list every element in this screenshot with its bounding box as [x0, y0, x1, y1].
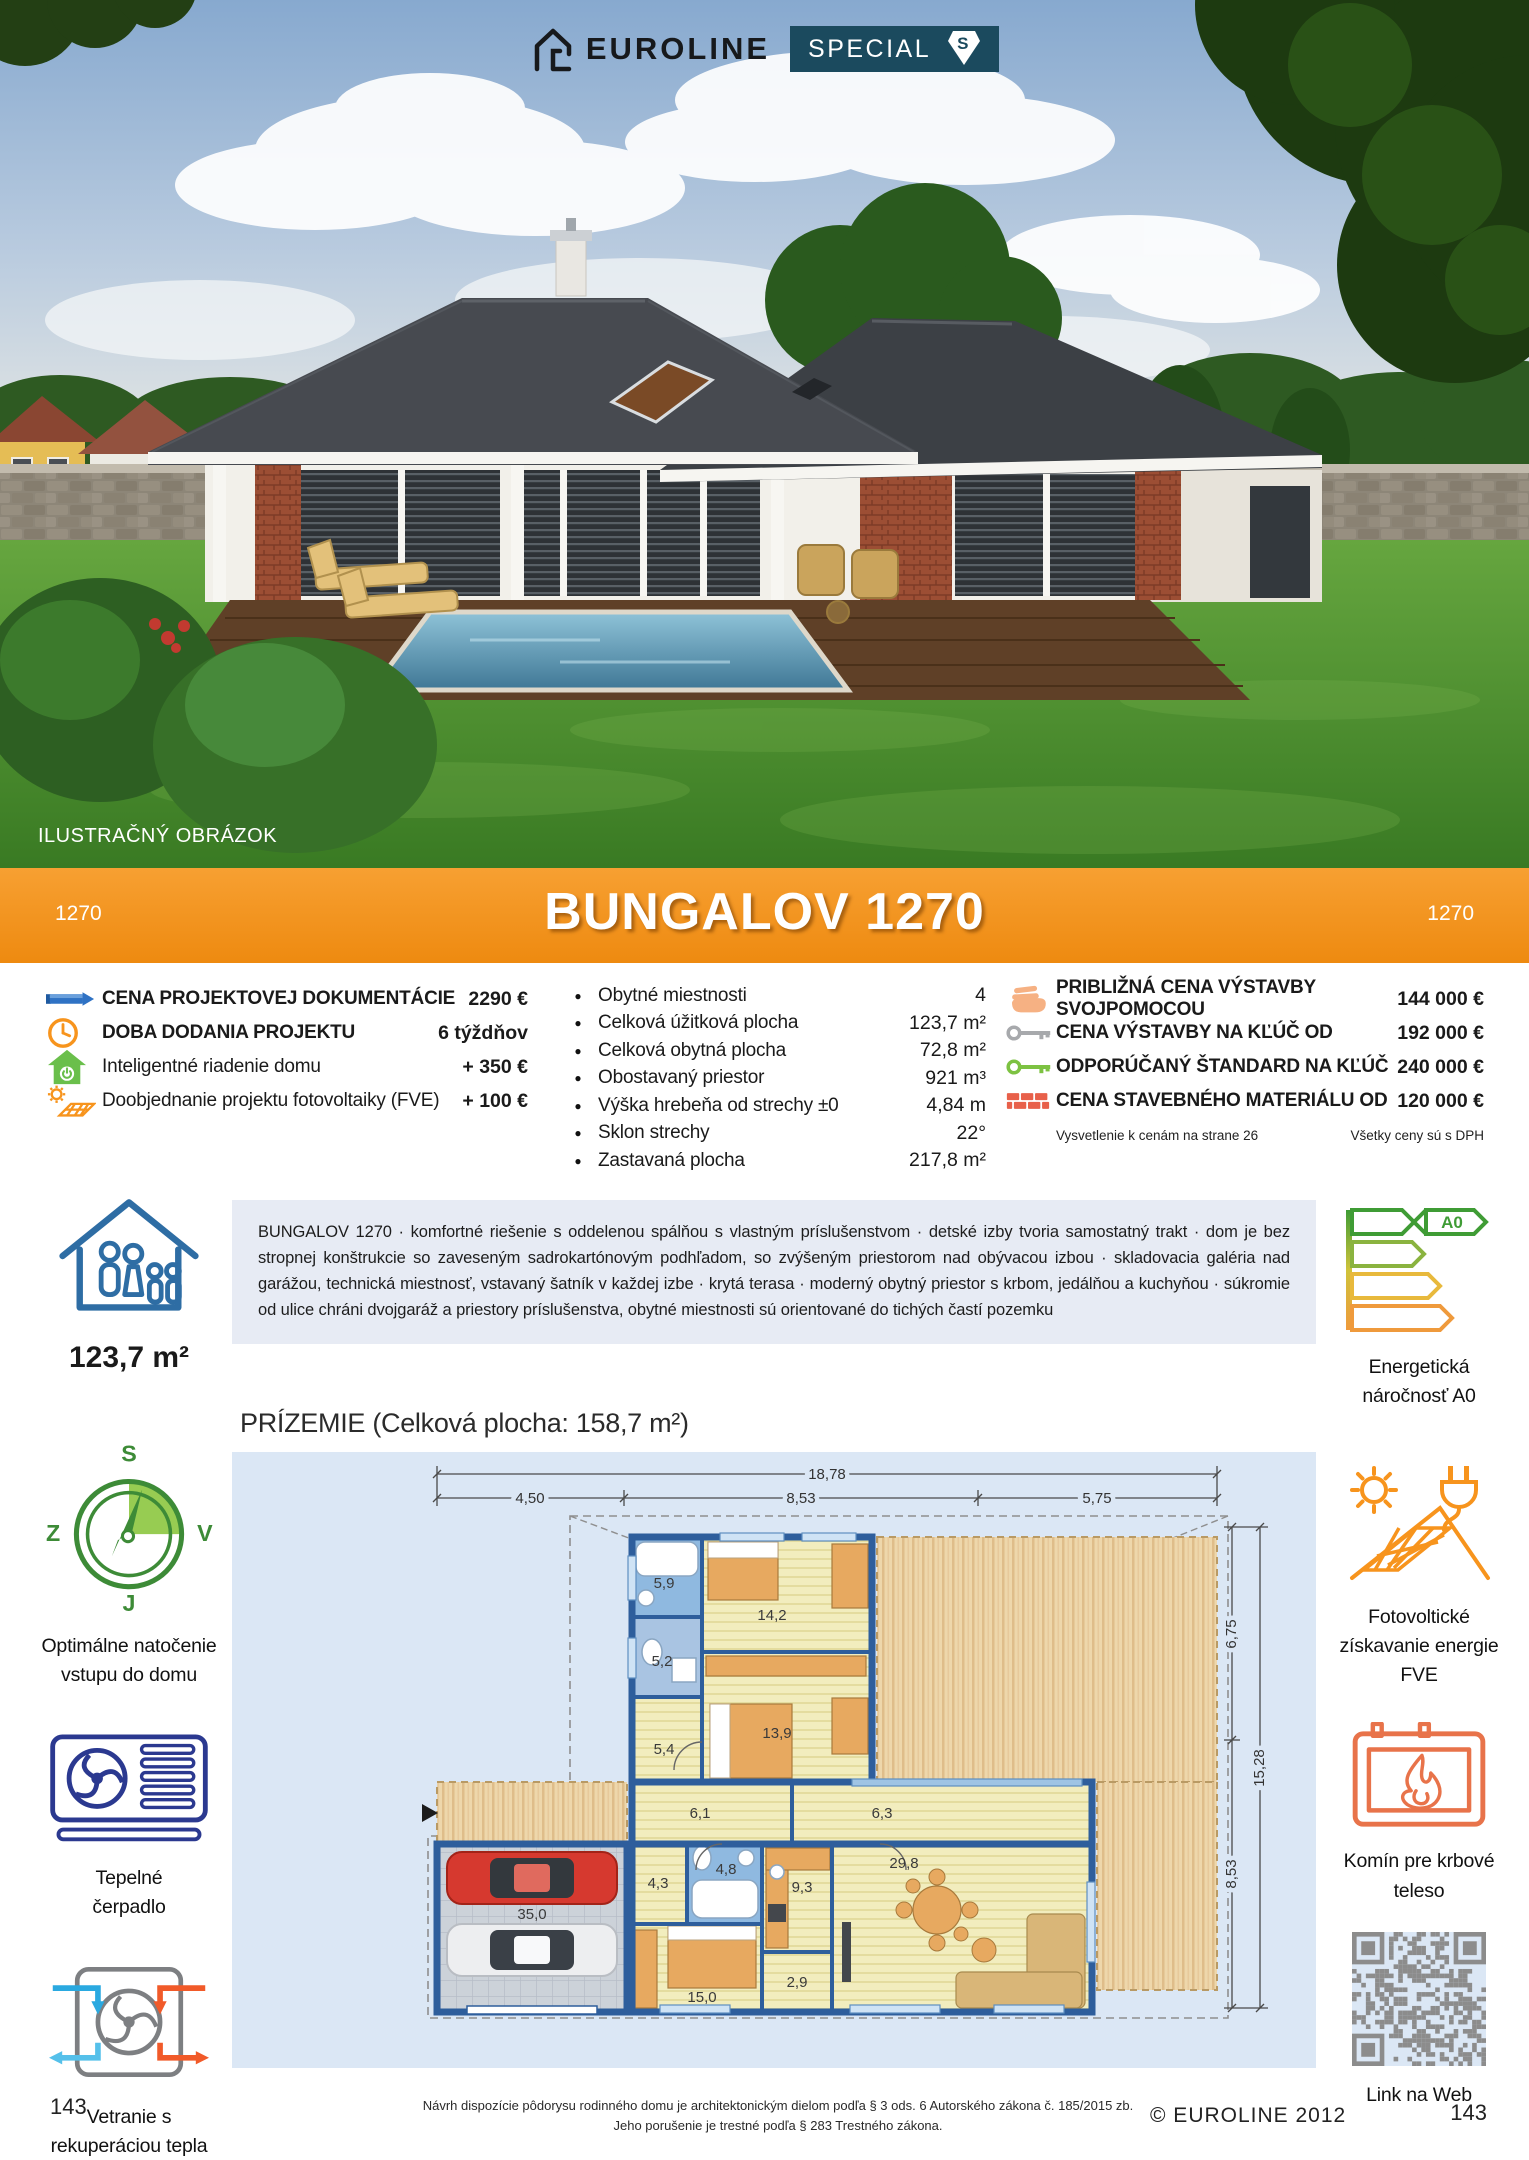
svg-text:15,28: 15,28 — [1251, 1749, 1268, 1787]
svg-text:A0: A0 — [1441, 1213, 1463, 1232]
smart-home-icon — [46, 1048, 102, 1086]
features-left: 123,7 m² S V J Z Optimálne natočenie vst… — [26, 1188, 232, 2160]
photo-caption: ILUSTRAČNÝ OBRÁZOK — [38, 825, 277, 848]
svg-text:29,8: 29,8 — [889, 1855, 918, 1872]
svg-text:V: V — [197, 1520, 213, 1546]
special-badge: SPECIAL S — [790, 26, 999, 72]
note-left: Vysvetlenie k cenám na strane 26 — [1056, 1128, 1258, 1143]
price-row: PRIBLIŽNÁ CENA VÝSTAVBY SVOJPOMOCOU 144 … — [1006, 982, 1484, 1016]
feature-photovoltaic: Fotovoltické získavanie energie FVE — [1326, 1460, 1512, 1691]
svg-text:18,78: 18,78 — [808, 1466, 846, 1483]
compass-caption-2: vstupu do domu — [26, 1661, 232, 1690]
feature-area: 123,7 m² — [26, 1188, 232, 1375]
bullet-icon: ● — [558, 1071, 598, 1085]
hero-photo: EUROLINE SPECIAL S ILUSTRAČNÝ OBRÁZOK — [0, 0, 1529, 868]
photovoltaic-icon — [1344, 1460, 1494, 1586]
spec-row: ●Obostavaný priestor921 m³ — [558, 1065, 986, 1093]
ventilation-caption-2: rekuperáciou tepla — [26, 2132, 232, 2160]
features-right: A0 Energetická náročnosť A0 — [1326, 1202, 1512, 2110]
svg-text:4,50: 4,50 — [515, 1490, 544, 1507]
legal-note: Návrh dispozície pôdorysu rodinného domu… — [404, 2096, 1152, 2136]
bullet-icon: ● — [558, 1126, 598, 1140]
svg-text:6,3: 6,3 — [872, 1805, 893, 1822]
spec-row: ●Celková úžitková plocha123,7 m² — [558, 1010, 986, 1038]
energy-rating-icon: A0 — [1344, 1202, 1494, 1338]
spec-row: ●Výška hrebeňa od strechy ±04,84 m — [558, 1092, 986, 1120]
compass-icon: S V J Z — [43, 1437, 215, 1613]
svg-text:S: S — [957, 34, 971, 53]
feature-ventilation: Vetranie s rekuperáciou tepla — [26, 1956, 232, 2160]
header-logos: EUROLINE SPECIAL S — [0, 26, 1529, 72]
svg-text:J: J — [123, 1590, 136, 1613]
svg-text:35,0: 35,0 — [517, 1906, 546, 1923]
floorplan-heading: PRÍZEMIE (Celková plocha: 158,7 m²) — [240, 1408, 689, 1439]
feature-energy: A0 Energetická náročnosť A0 — [1326, 1202, 1512, 1412]
price-row: Inteligentné riadenie domu + 350 € — [46, 1050, 528, 1084]
brand-name: EUROLINE — [586, 31, 770, 67]
svg-text:15,0: 15,0 — [687, 1989, 716, 2006]
fireplace-caption-2: teleso — [1326, 1877, 1512, 1906]
feature-fireplace: Komín pre krbové teleso — [1326, 1722, 1512, 1906]
svg-text:2,9: 2,9 — [787, 1974, 808, 1991]
solar-panel-icon — [46, 1084, 102, 1118]
floorplan-drawing: 5,9 14,2 5,2 5,4 13,9 6,1 6,3 4,3 4,8 9,… — [232, 1452, 1316, 2068]
compass-caption-1: Optimálne natočenie — [26, 1632, 232, 1661]
spec-row: ●Obytné miestnosti4 — [558, 982, 986, 1010]
svg-text:5,9: 5,9 — [654, 1575, 675, 1592]
price-row: CENA VÝSTAVBY NA KĽÚČ OD 192 000 € — [1006, 1016, 1484, 1050]
hand-icon — [1006, 983, 1056, 1015]
heatpump-caption-1: Tepelné — [26, 1864, 232, 1893]
svg-text:6,1: 6,1 — [690, 1805, 711, 1822]
bullet-icon: ● — [558, 1016, 598, 1030]
construction-pricing: PRIBLIŽNÁ CENA VÝSTAVBY SVOJPOMOCOU 144 … — [1006, 982, 1484, 1143]
floorplan: 5,9 14,2 5,2 5,4 13,9 6,1 6,3 4,3 4,8 9,… — [232, 1452, 1316, 2068]
page-number-left: 143 — [50, 2094, 87, 2120]
bricks-icon — [1006, 1091, 1056, 1111]
qr-code — [1352, 1932, 1486, 2066]
heatpump-caption-2: čerpadlo — [26, 1893, 232, 1922]
energy-caption-2: náročnosť A0 — [1326, 1382, 1512, 1411]
heat-pump-icon — [46, 1733, 212, 1847]
pv-caption-2: získavanie energie — [1326, 1632, 1512, 1661]
svg-text:5,2: 5,2 — [652, 1653, 673, 1670]
legal-line-1: Návrh dispozície pôdorysu rodinného domu… — [404, 2096, 1152, 2116]
house-illustration — [0, 0, 1529, 868]
spec-row: ●Sklon strechy22° — [558, 1120, 986, 1148]
catalog-page: EUROLINE SPECIAL S ILUSTRAČNÝ OBRÁZOK 12… — [0, 0, 1529, 2160]
project-pricing: CENA PROJEKTOVEJ DOKUMENTÁCIE 2290 € DOB… — [46, 982, 528, 1118]
special-label: SPECIAL — [808, 35, 931, 64]
price-row: ODPORÚČANÝ ŠTANDARD NA KĽÚČ 240 000 € — [1006, 1050, 1484, 1084]
house-family-icon — [54, 1188, 204, 1324]
svg-text:S: S — [121, 1440, 137, 1466]
bullet-icon: ● — [558, 989, 598, 1003]
energy-caption-1: Energetická — [1326, 1353, 1512, 1382]
page-title: BUNGALOV 1270 — [0, 882, 1529, 942]
spec-row: ●Zastavaná plocha217,8 m² — [558, 1147, 986, 1175]
spec-list: ●Obytné miestnosti4 ●Celková úžitková pl… — [558, 982, 986, 1175]
feature-heatpump: Tepelné čerpadlo — [26, 1733, 232, 1923]
special-shield-icon: S — [947, 29, 981, 69]
pv-caption-3: FVE — [1326, 1661, 1512, 1690]
key-gray-icon — [1006, 1022, 1056, 1044]
svg-text:Z: Z — [46, 1520, 60, 1546]
svg-text:14,2: 14,2 — [757, 1607, 786, 1624]
price-row: Doobjednanie projektu fotovoltaiky (FVE)… — [46, 1084, 528, 1118]
svg-text:9,3: 9,3 — [792, 1879, 813, 1896]
svg-text:4,3: 4,3 — [648, 1875, 669, 1892]
clock-icon — [46, 1016, 102, 1050]
euroline-logo: EUROLINE — [530, 26, 770, 72]
euroline-house-icon — [530, 26, 576, 72]
title-banner: 1270 BUNGALOV 1270 1270 — [0, 868, 1529, 963]
note-right: Všetky ceny sú s DPH — [1350, 1128, 1484, 1143]
key-green-icon — [1006, 1056, 1056, 1078]
pencil-icon — [46, 988, 102, 1010]
bullet-icon: ● — [558, 1154, 598, 1168]
ventilation-icon — [49, 1956, 209, 2088]
usable-area: 123,7 m² — [26, 1341, 232, 1375]
house-description: BUNGALOV 1270 · komfortné riešenie s odd… — [232, 1200, 1316, 1344]
svg-text:5,4: 5,4 — [654, 1741, 675, 1758]
svg-text:5,75: 5,75 — [1082, 1490, 1111, 1507]
svg-text:8,53: 8,53 — [786, 1490, 815, 1507]
bullet-icon: ● — [558, 1044, 598, 1058]
feature-compass: S V J Z Optimálne natočenie vstupu do do… — [26, 1437, 232, 1691]
svg-text:6,75: 6,75 — [1223, 1619, 1240, 1648]
model-code-right: 1270 — [1427, 902, 1474, 926]
page-number-right: 143 — [1450, 2100, 1487, 2126]
spec-row: ●Celková obytná plocha72,8 m² — [558, 1037, 986, 1065]
fireplace-icon — [1345, 1722, 1493, 1832]
legal-line-2: Jeho porušenie je trestné podľa § 283 Tr… — [404, 2116, 1152, 2136]
bullet-icon: ● — [558, 1099, 598, 1113]
svg-text:4,8: 4,8 — [716, 1861, 737, 1878]
svg-text:8,53: 8,53 — [1223, 1859, 1240, 1888]
price-notes: Vysvetlenie k cenám na strane 26 Všetky … — [1006, 1128, 1484, 1143]
price-row: CENA STAVEBNÉHO MATERIÁLU OD 120 000 € — [1006, 1084, 1484, 1118]
fireplace-caption-1: Komín pre krbové — [1326, 1847, 1512, 1876]
price-row: DOBA DODANIA PROJEKTU 6 týždňov — [46, 1016, 528, 1050]
price-row: CENA PROJEKTOVEJ DOKUMENTÁCIE 2290 € — [46, 982, 528, 1016]
svg-text:13,9: 13,9 — [762, 1725, 791, 1742]
pv-caption-1: Fotovoltické — [1326, 1603, 1512, 1632]
feature-qr: Link na Web — [1326, 1932, 1512, 2110]
copyright: © EUROLINE 2012 — [1150, 2104, 1346, 2128]
